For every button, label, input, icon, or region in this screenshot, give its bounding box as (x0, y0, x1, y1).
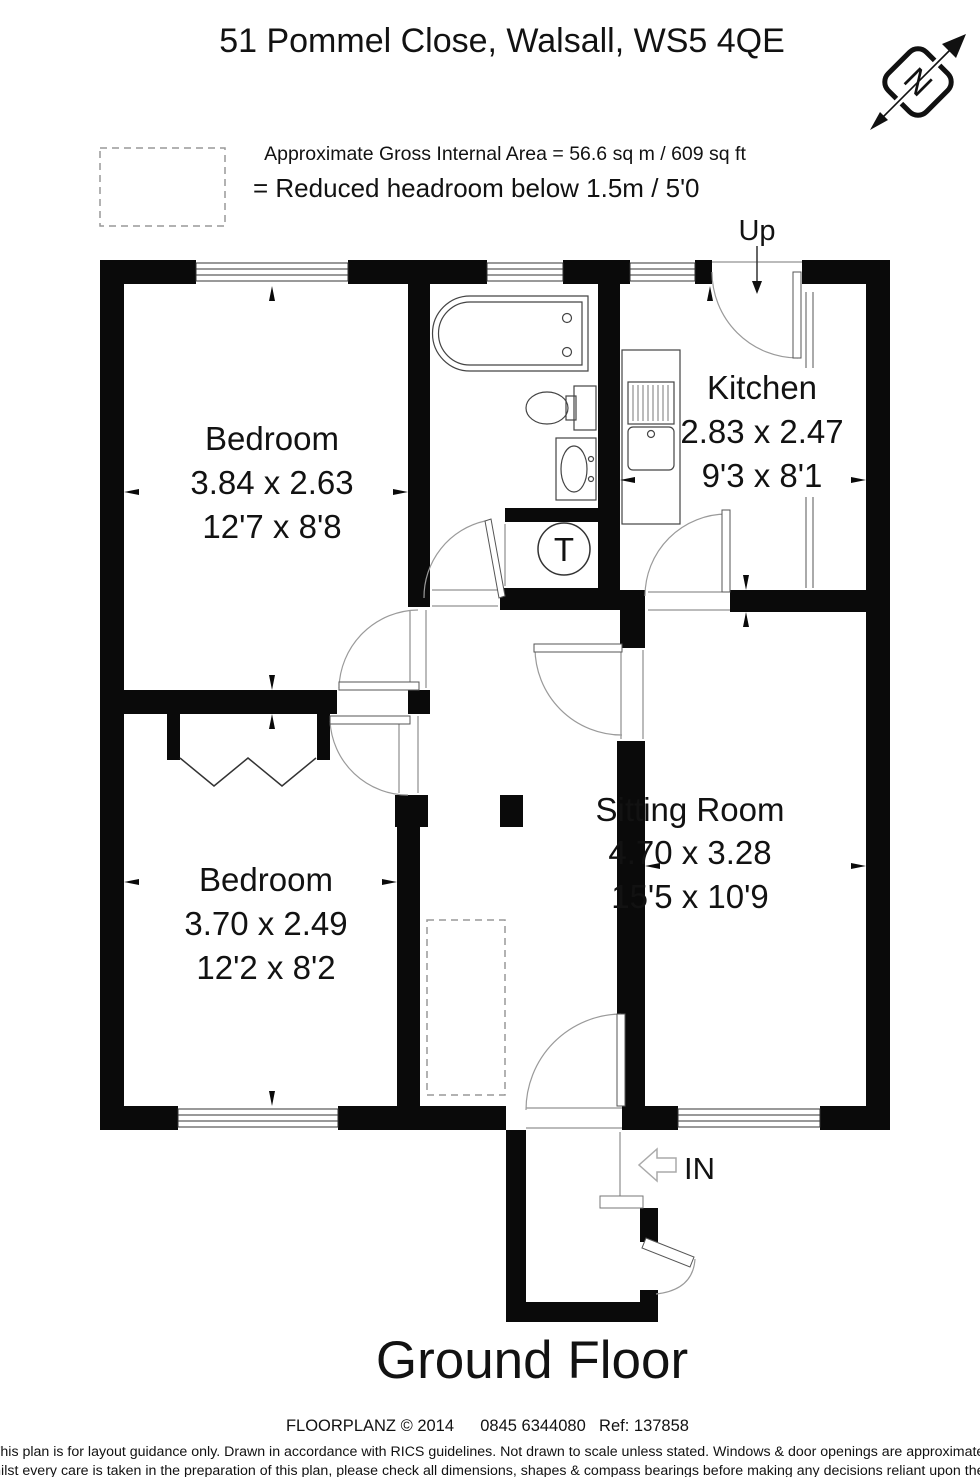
porch-details (600, 1132, 643, 1208)
room-name: Bedroom (205, 420, 339, 457)
floor-title: Ground Floor (376, 1331, 688, 1390)
entrance-annotation: IN (639, 1149, 715, 1186)
in-label: IN (684, 1151, 715, 1186)
sink-drainer (628, 382, 674, 424)
floor-plan-svg: 51 Pommel Close, Walsall, WS5 4QE Approx… (0, 0, 980, 1477)
wardrobe-bifold (180, 758, 316, 786)
room-label-bedroom1: Bedroom 3.84 x 2.63 12'7 x 8'8 (190, 420, 353, 545)
legend-label: = Reduced headroom below 1.5m / 5'0 (253, 173, 700, 203)
bathroom-fixtures (433, 296, 596, 500)
room-metric: 3.84 x 2.63 (190, 464, 353, 501)
up-stairs-annotation: Up (738, 215, 775, 294)
room-label-kitchen: Kitchen 2.83 x 2.47 9'3 x 8'1 (680, 369, 843, 494)
page-title: 51 Pommel Close, Walsall, WS5 4QE (219, 22, 785, 60)
toilet (526, 386, 596, 430)
in-arrow-icon (639, 1149, 676, 1181)
disclaimer-line-1: This plan is for layout guidance only. D… (0, 1444, 980, 1460)
bedroom1-window (196, 263, 348, 281)
area-subtitle: Approximate Gross Internal Area = 56.6 s… (264, 143, 746, 165)
branding-line: FLOORPLANZ © 2014 0845 6344080 Ref: 1378… (286, 1417, 689, 1435)
bathroom-window (487, 263, 563, 281)
compass-icon: N (870, 34, 966, 130)
room-imperial: 15'5 x 10'9 (611, 878, 769, 915)
room-imperial: 12'7 x 8'8 (202, 508, 341, 545)
up-label: Up (738, 215, 775, 247)
bedroom2-window (178, 1109, 338, 1127)
sink-bowl (628, 427, 674, 470)
disclaimer: This plan is for layout guidance only. D… (0, 1444, 980, 1477)
reduced-headroom-area (427, 920, 505, 1095)
bathtub (433, 296, 588, 371)
room-name: Bedroom (199, 861, 333, 898)
room-label-bedroom2: Bedroom 3.70 x 2.49 12'2 x 8'2 (184, 861, 347, 986)
room-label-sitting-room: Sitting Room 4.70 x 3.28 15'5 x 10'9 (596, 791, 785, 915)
brand-phone: 0845 6344080 (480, 1417, 586, 1435)
basin (556, 438, 596, 500)
up-arrow-icon (752, 281, 762, 294)
tank-label: T (554, 531, 574, 568)
room-name: Kitchen (707, 369, 817, 406)
kitchen-window (630, 263, 695, 281)
legend-swatch (100, 148, 225, 226)
brand-ref: Ref: 137858 (599, 1417, 689, 1435)
disclaimer-line-2: Whilst every care is taken in the prepar… (0, 1463, 980, 1477)
brand-text: FLOORPLANZ © 2014 (286, 1417, 454, 1435)
kitchen-fixtures (622, 350, 680, 524)
room-imperial: 9'3 x 8'1 (702, 457, 823, 494)
room-imperial: 12'2 x 8'2 (196, 949, 335, 986)
sitting-room-window (678, 1109, 820, 1127)
room-metric: 4.70 x 3.28 (608, 834, 771, 871)
room-name: Sitting Room (596, 791, 785, 828)
tank-cupboard: T (538, 523, 590, 575)
room-metric: 2.83 x 2.47 (680, 413, 843, 450)
room-metric: 3.70 x 2.49 (184, 905, 347, 942)
